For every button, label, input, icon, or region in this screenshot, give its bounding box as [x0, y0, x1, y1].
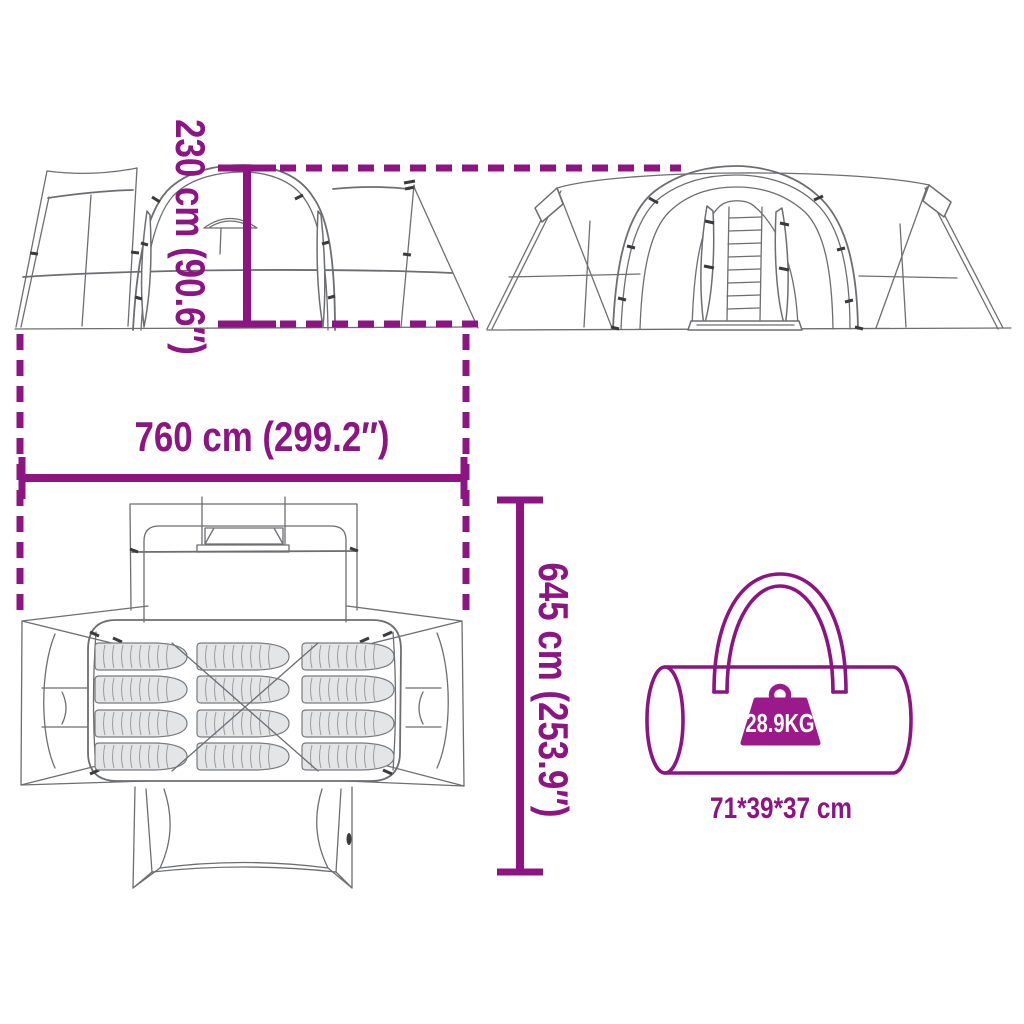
width-dimension-line	[22, 457, 464, 499]
sleeping-mat	[95, 710, 187, 737]
sleeping-mat	[302, 743, 394, 770]
diagram-canvas	[0, 0, 1024, 1024]
width-dimension-label: 760 cm (299.2″)	[134, 416, 389, 458]
bag-weight-label: 28.9KG	[746, 710, 815, 736]
tent-front-view-drawing	[487, 166, 1011, 330]
depth-dimension-label: 645 cm (253.9″)	[532, 562, 574, 817]
height-dimension-line	[218, 168, 276, 324]
page-root: 230 cm (90.6″) 760 cm (299.2″) 645 cm (2…	[0, 0, 1024, 1024]
carry-bag-icon	[647, 574, 911, 773]
sleeping-mat	[302, 643, 394, 670]
sleeping-mat	[302, 676, 394, 703]
sleeping-mat	[197, 743, 289, 770]
sleeping-mat	[95, 743, 187, 770]
sleeping-mat	[197, 643, 289, 670]
sleeping-mat	[95, 643, 187, 670]
sleeping-mat	[95, 676, 187, 703]
tent-floor-plan-drawing	[21, 497, 464, 888]
sleeping-mat	[302, 710, 394, 737]
height-dimension-label: 230 cm (90.6″)	[169, 119, 211, 355]
height-extension-dashes	[280, 168, 681, 324]
bag-size-label: 71*39*37 cm	[710, 794, 852, 824]
